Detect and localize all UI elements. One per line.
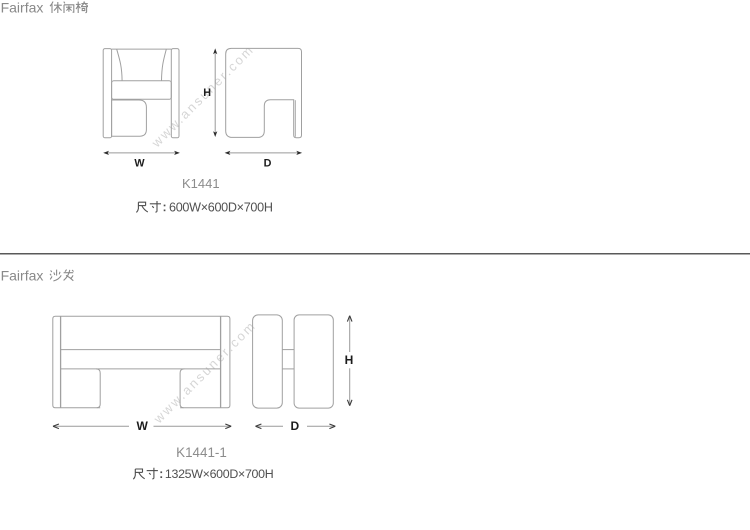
svg-text:www.ansuner.com: www.ansuner.com xyxy=(150,318,259,427)
svg-text:W: W xyxy=(137,419,149,433)
svg-text:600W×600D×700H: 600W×600D×700H xyxy=(169,200,273,214)
svg-text:H: H xyxy=(345,353,354,367)
svg-text:W: W xyxy=(134,157,145,169)
svg-text:D: D xyxy=(290,419,299,433)
svg-text:D: D xyxy=(264,157,272,169)
svg-text:Fairfax: Fairfax xyxy=(1,268,44,284)
svg-text:K1441: K1441 xyxy=(182,176,220,191)
svg-text:K1441-1: K1441-1 xyxy=(176,445,227,460)
svg-text:1325W×600D×700H: 1325W×600D×700H xyxy=(165,467,273,481)
svg-text:H: H xyxy=(203,87,211,99)
svg-text:Fairfax: Fairfax xyxy=(1,0,44,16)
